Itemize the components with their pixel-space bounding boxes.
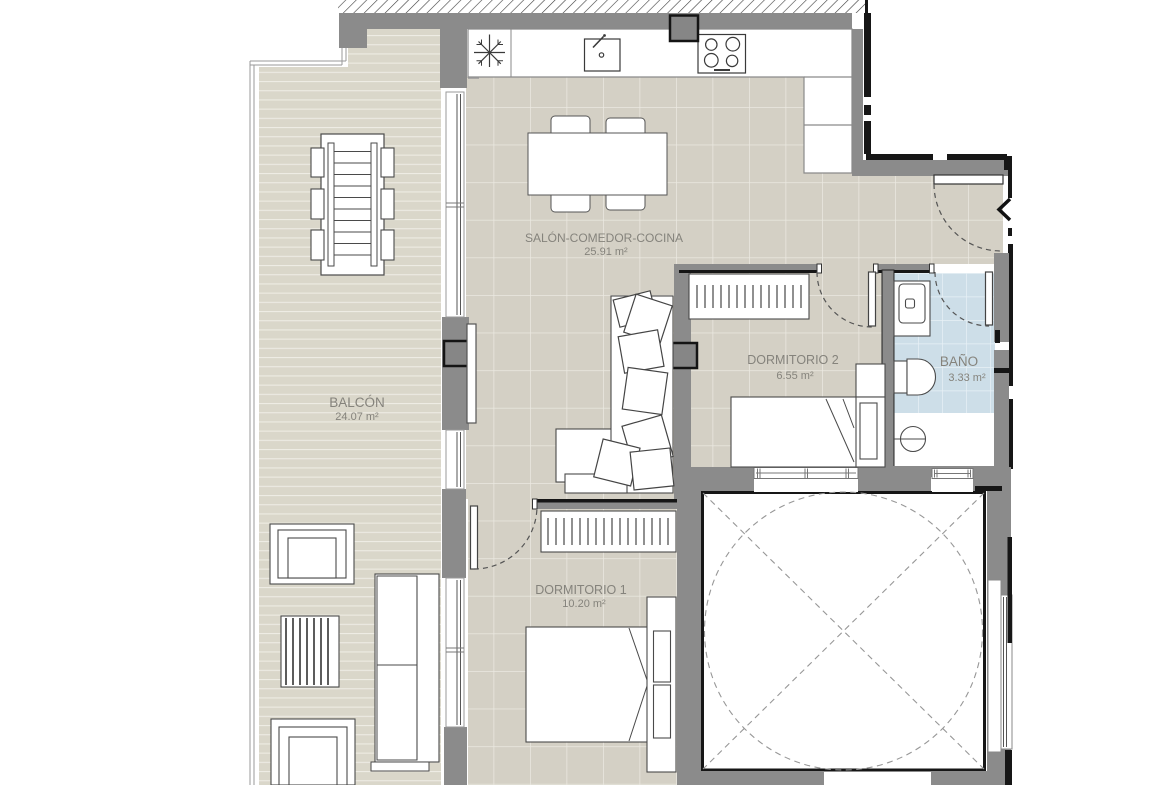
svg-text:DORMITORIO 2: DORMITORIO 2 xyxy=(747,353,838,367)
svg-text:10.20 m²: 10.20 m² xyxy=(562,598,606,610)
svg-text:24.07 m²: 24.07 m² xyxy=(335,411,379,423)
svg-text:6.55 m²: 6.55 m² xyxy=(776,370,814,382)
svg-text:DORMITORIO 1: DORMITORIO 1 xyxy=(535,583,626,597)
svg-text:BALCÓN: BALCÓN xyxy=(329,395,385,410)
svg-text:3.33 m²: 3.33 m² xyxy=(948,372,986,384)
svg-text:BAÑO: BAÑO xyxy=(940,354,978,369)
svg-text:SALÓN-COMEDOR-COCINA: SALÓN-COMEDOR-COCINA xyxy=(525,230,683,245)
svg-text:25.91 m²: 25.91 m² xyxy=(584,246,628,258)
